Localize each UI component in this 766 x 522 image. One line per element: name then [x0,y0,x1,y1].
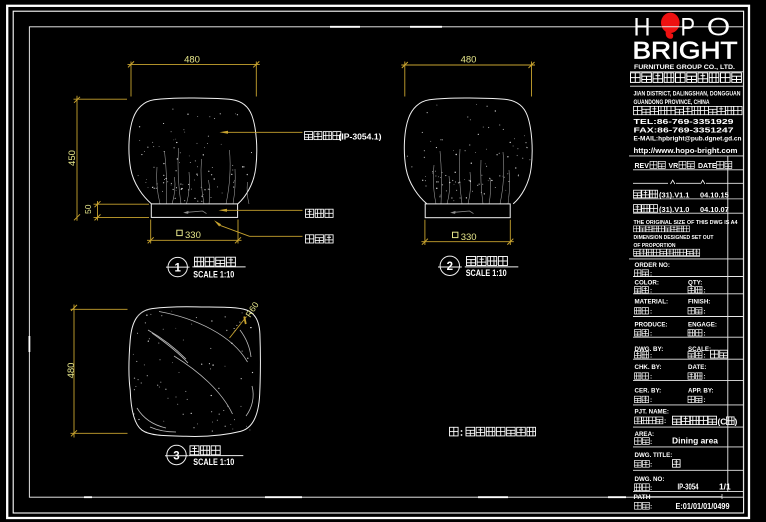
svg-text::: : [650,374,652,381]
svg-text::: : [650,308,652,315]
svg-text:CER. BY:: CER. BY: [635,387,662,394]
svg-text:SCALE 1:10: SCALE 1:10 [193,270,234,280]
svg-text:330: 330 [185,230,201,241]
svg-text::: : [704,308,706,315]
svg-text:CHK. BY:: CHK. BY: [635,364,662,371]
svg-text:480: 480 [66,363,77,379]
svg-text:480: 480 [461,55,477,66]
svg-text:DWG. TITLE:: DWG. TITLE: [635,452,673,459]
svg-text:AREA:: AREA: [635,431,655,438]
svg-text:(C: (C [718,416,727,426]
svg-text:DIMENSION DESIGNED SET OUT: DIMENSION DESIGNED SET OUT [634,235,714,241]
svg-text:FINISH:: FINISH: [688,298,710,305]
svg-text:OF PROPORTION: OF PROPORTION [634,243,676,249]
svg-text::: : [650,397,652,404]
svg-text:(31).V1.1: (31).V1.1 [659,190,689,199]
svg-text:480: 480 [184,54,200,65]
svg-text:ENGAGE:: ENGAGE: [688,321,717,328]
svg-text::: : [704,330,706,337]
svg-text::: : [704,374,706,381]
svg-text::: : [650,504,652,511]
svg-text:GUANDONG PROVINCE, CHINA: GUANDONG PROVINCE, CHINA [634,99,710,106]
svg-text:330: 330 [461,232,477,243]
svg-text:1: 1 [174,262,181,274]
svg-text:QTY:: QTY: [688,280,702,287]
svg-text::: : [650,352,652,359]
svg-text:(IP-3054.1): (IP-3054.1) [339,132,382,142]
svg-text:BRIGHT: BRIGHT [633,38,738,65]
svg-text::: : [704,397,706,404]
svg-text:50: 50 [83,204,93,214]
svg-text:APP. BY:: APP. BY: [688,387,714,394]
svg-text:MATERIAL:: MATERIAL: [635,298,669,305]
svg-text:FURNITURE GROUP CO., LTD.: FURNITURE GROUP CO., LTD. [634,64,735,71]
svg-text:FAX:86-769-3351247: FAX:86-769-3351247 [634,126,734,135]
svg-text:SCALE 1:10: SCALE 1:10 [193,457,234,467]
svg-text::: : [704,287,706,294]
svg-text:2: 2 [447,261,453,273]
svg-text:ORDER NO:: ORDER NO: [635,262,670,269]
svg-text::: : [650,485,652,492]
svg-text:PJT. NAME:: PJT. NAME: [635,409,669,416]
svg-text::: : [650,287,652,294]
svg-text:3: 3 [173,450,179,462]
svg-text:DWG. NO:: DWG. NO: [635,476,665,483]
svg-text::: : [704,352,706,359]
svg-text:http://www.hopo-bright.com: http://www.hopo-bright.com [634,146,738,155]
svg-text::: : [650,330,652,337]
svg-text:JIAN DISTRICT, DALINGSHAN, DON: JIAN DISTRICT, DALINGSHAN, DONGGUAN [634,90,741,97]
svg-text:COLOR:: COLOR: [635,280,659,287]
svg-text::: : [664,418,666,425]
svg-text::: : [650,462,652,469]
svg-text:): ) [735,416,738,426]
svg-text:DATE: DATE [698,163,717,170]
svg-text:SCALE 1:10: SCALE 1:10 [466,268,507,278]
svg-text:DATE:: DATE: [688,364,706,371]
svg-text:E:01/01/01/0499: E:01/01/01/0499 [676,502,730,511]
svg-text:THE ORIGINAL SIZE OF THIS DWG: THE ORIGINAL SIZE OF THIS DWG IS A4 [634,220,739,226]
svg-text:E-MAIL:hpbright@pub.dgnet.gd.c: E-MAIL:hpbright@pub.dgnet.gd.cn [634,136,742,142]
svg-text::: : [650,271,652,278]
svg-text::: : [650,439,652,446]
svg-text:1/1: 1/1 [719,482,731,492]
svg-text:450: 450 [67,150,78,166]
svg-text:Dining area: Dining area [672,436,718,446]
svg-text:VR: VR [669,163,679,170]
svg-text:04.10.07: 04.10.07 [700,205,729,214]
svg-text:IP-3054: IP-3054 [678,482,699,492]
svg-text:REV: REV [635,163,650,170]
svg-text:(31).V1.0: (31).V1.0 [659,205,689,214]
svg-text:PRODUCE:: PRODUCE: [635,321,668,328]
svg-text:PATH: PATH [634,494,651,501]
svg-text:04.10.15: 04.10.15 [700,190,729,199]
